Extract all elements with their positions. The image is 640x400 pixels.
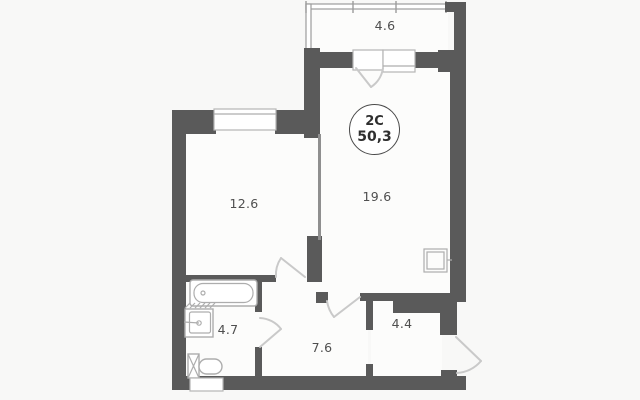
room-area-label-hallway: 7.6 bbox=[297, 340, 347, 355]
layout-code-text: 2C bbox=[365, 115, 384, 129]
plan-type-badge: 2C 50,3 bbox=[349, 104, 400, 155]
room-area-label-balcony: 4.6 bbox=[360, 18, 410, 33]
entry-door-swing bbox=[456, 337, 481, 373]
room-area-label-living-room: 19.6 bbox=[352, 189, 402, 204]
bathtub bbox=[190, 280, 257, 306]
total-area-text: 50,3 bbox=[357, 129, 392, 145]
floorplan-canvas: 4.6 12.6 19.6 4.7 7.6 4.4 2C 50,3 bbox=[0, 0, 640, 400]
room-area-label-entry-hall: 4.4 bbox=[377, 316, 427, 331]
room-area-label-bedroom: 12.6 bbox=[219, 196, 269, 211]
wall-niche bbox=[190, 378, 223, 391]
room-area-label-bathroom: 4.7 bbox=[203, 322, 253, 337]
